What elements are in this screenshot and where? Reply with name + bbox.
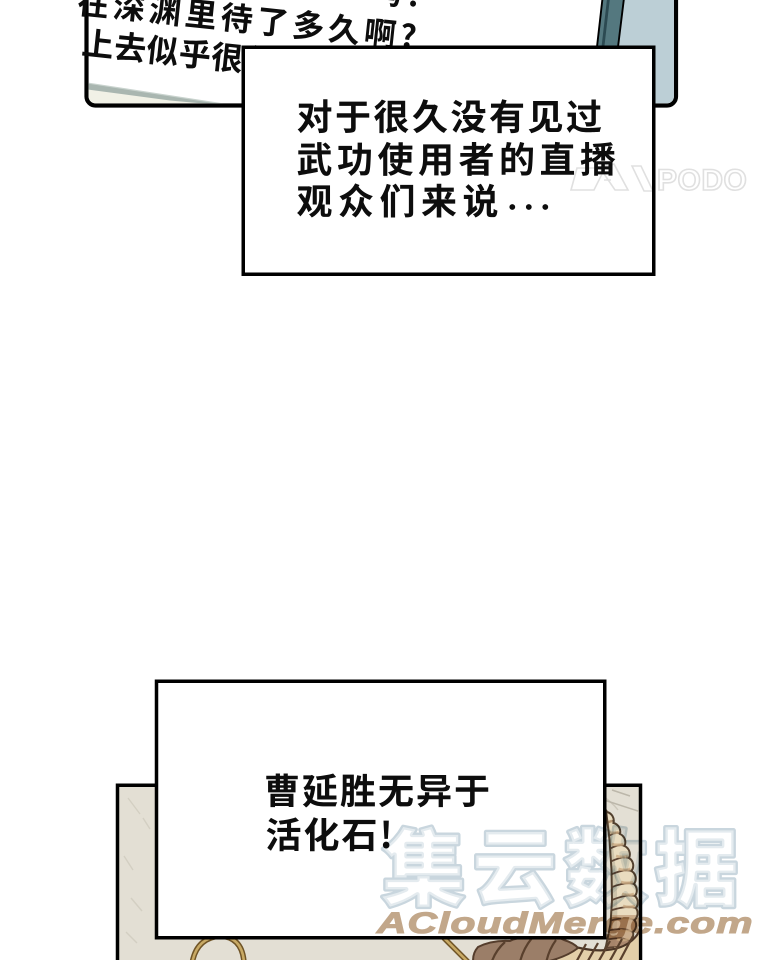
svg-text:ACloudMerge.com: ACloudMerge.com xyxy=(376,906,754,940)
svg-text:PODO: PODO xyxy=(657,164,747,197)
